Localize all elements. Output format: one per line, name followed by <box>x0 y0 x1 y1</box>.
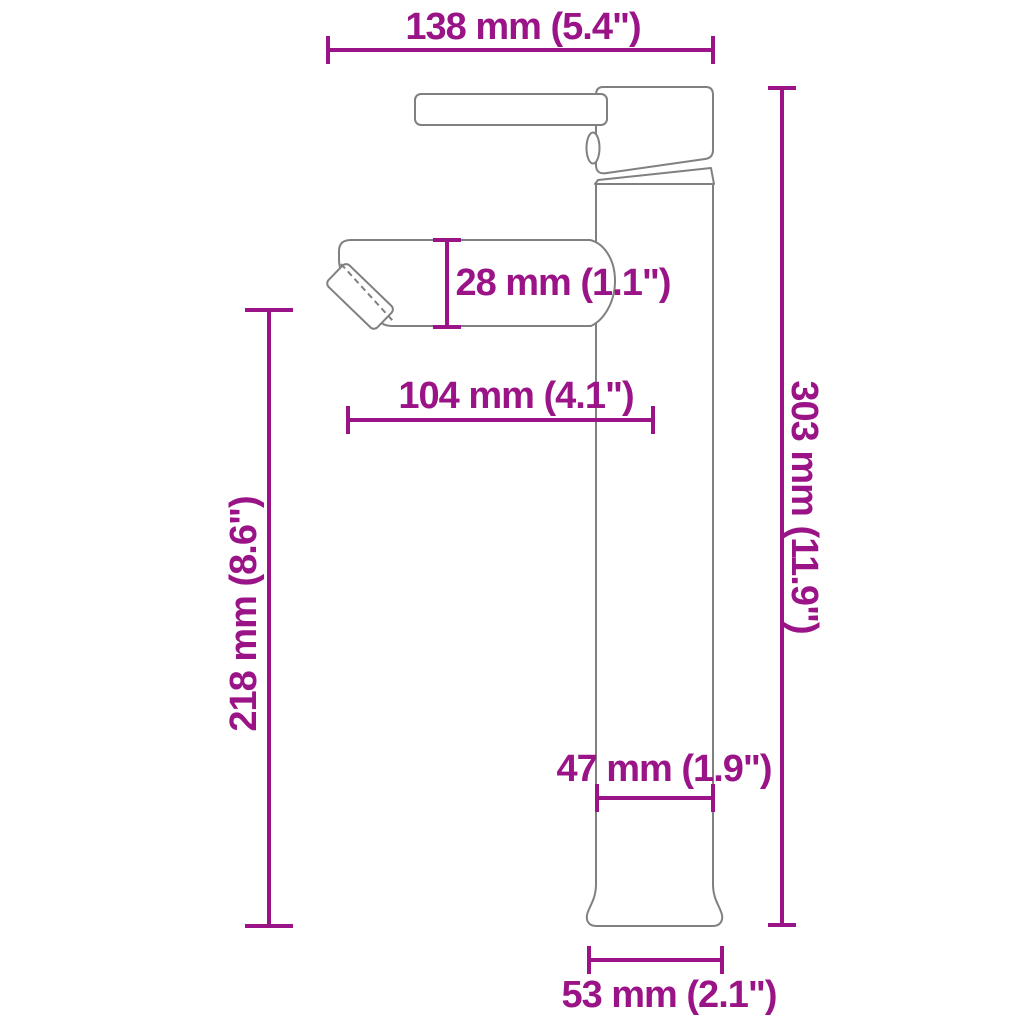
dimension-label-base-width: 53 mm (2.1") <box>561 976 776 1014</box>
dimension-label-body-width: 47 mm (1.9") <box>556 750 771 788</box>
dimension-label-spout-clearance: 218 mm (8.6") <box>225 496 263 731</box>
dimension-label-spout-reach: 104 mm (4.1") <box>398 377 633 415</box>
dimension-base-width <box>589 946 722 974</box>
faucet-drawing <box>0 0 1024 1024</box>
faucet-head <box>596 87 713 173</box>
dimension-diagram: 138 mm (5.4") 28 mm (1.1") 104 mm (4.1")… <box>0 0 1024 1024</box>
dimension-label-spout-height: 28 mm (1.1") <box>455 264 670 302</box>
faucet-handle-lever <box>415 94 607 125</box>
faucet-handle-pivot <box>587 133 600 164</box>
dimension-label-total-height: 303 mm (11.9") <box>785 380 823 633</box>
dimension-label-top-width: 138 mm (5.4") <box>405 8 640 46</box>
faucet-outline <box>325 87 722 926</box>
